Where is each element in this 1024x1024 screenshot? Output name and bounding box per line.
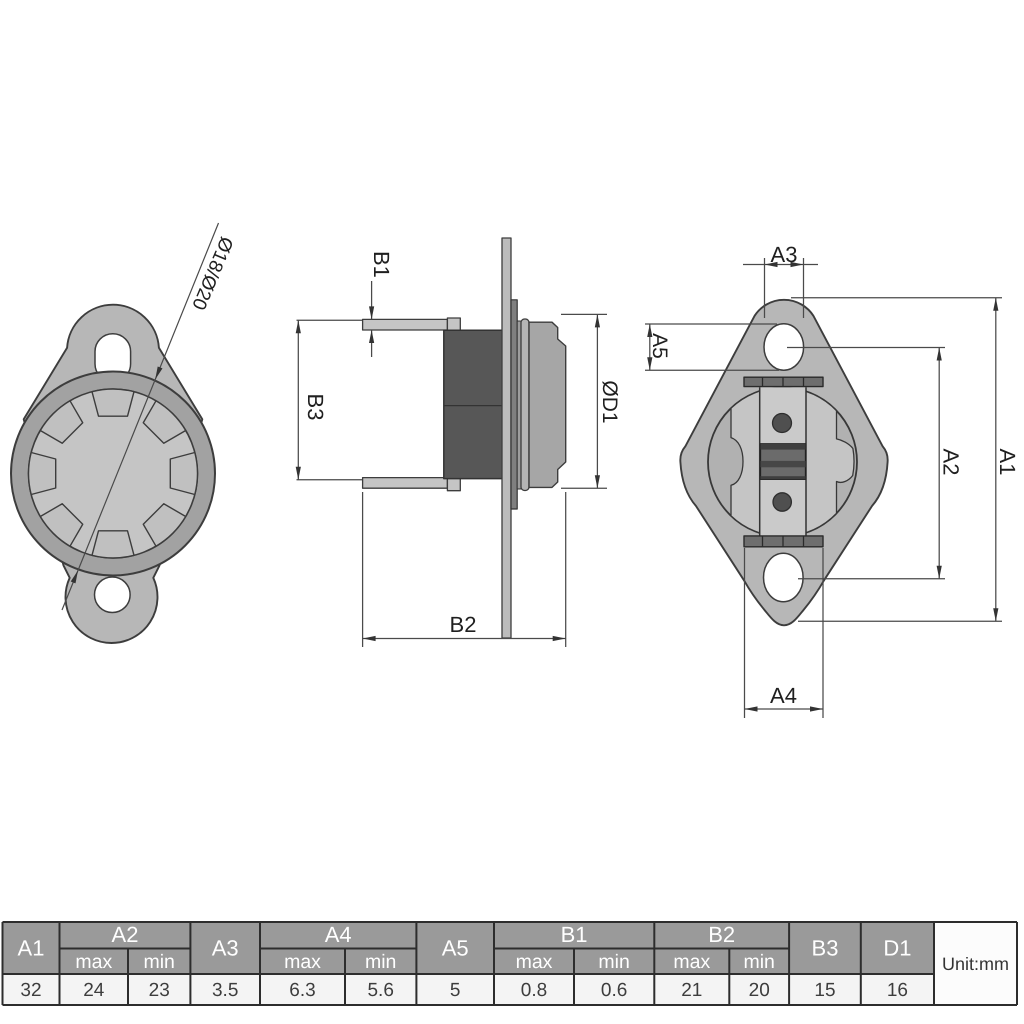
svg-text:min: min xyxy=(365,951,396,973)
svg-text:A4: A4 xyxy=(325,922,352,947)
svg-text:max: max xyxy=(673,951,710,973)
svg-text:A1: A1 xyxy=(995,449,1020,476)
svg-text:A3: A3 xyxy=(212,936,239,961)
svg-text:B2: B2 xyxy=(708,922,735,947)
svg-text:B3: B3 xyxy=(812,936,839,961)
svg-text:B3: B3 xyxy=(303,394,328,421)
svg-text:32: 32 xyxy=(20,980,41,1001)
svg-text:B1: B1 xyxy=(561,922,588,947)
svg-text:A1: A1 xyxy=(18,936,45,961)
svg-text:16: 16 xyxy=(887,980,908,1001)
svg-text:max: max xyxy=(75,951,112,973)
svg-text:5.6: 5.6 xyxy=(367,980,393,1001)
svg-text:A5: A5 xyxy=(648,333,671,359)
svg-text:Ø18/Ø20: Ø18/Ø20 xyxy=(187,234,236,313)
svg-text:0.6: 0.6 xyxy=(601,980,627,1001)
svg-text:15: 15 xyxy=(814,980,835,1001)
svg-text:A2: A2 xyxy=(112,922,139,947)
svg-text:A5: A5 xyxy=(442,936,469,961)
svg-text:max: max xyxy=(516,951,553,973)
svg-text:max: max xyxy=(284,951,321,973)
svg-text:B1: B1 xyxy=(369,251,394,278)
svg-text:ØD1: ØD1 xyxy=(598,380,621,423)
svg-text:6.3: 6.3 xyxy=(289,980,315,1001)
svg-text:A3: A3 xyxy=(771,242,798,267)
svg-text:B2: B2 xyxy=(450,612,477,637)
svg-text:24: 24 xyxy=(83,980,105,1001)
svg-text:23: 23 xyxy=(149,980,170,1001)
svg-text:20: 20 xyxy=(749,980,770,1001)
svg-text:5: 5 xyxy=(450,980,461,1001)
svg-text:0.8: 0.8 xyxy=(521,980,547,1001)
svg-text:A4: A4 xyxy=(770,683,797,708)
svg-text:min: min xyxy=(598,951,629,973)
svg-text:min: min xyxy=(743,951,774,973)
svg-text:21: 21 xyxy=(681,980,702,1001)
svg-text:A2: A2 xyxy=(939,449,964,476)
svg-text:min: min xyxy=(143,951,174,973)
svg-text:Unit:mm: Unit:mm xyxy=(942,954,1009,974)
svg-text:3.5: 3.5 xyxy=(212,980,238,1001)
svg-text:D1: D1 xyxy=(883,936,911,961)
